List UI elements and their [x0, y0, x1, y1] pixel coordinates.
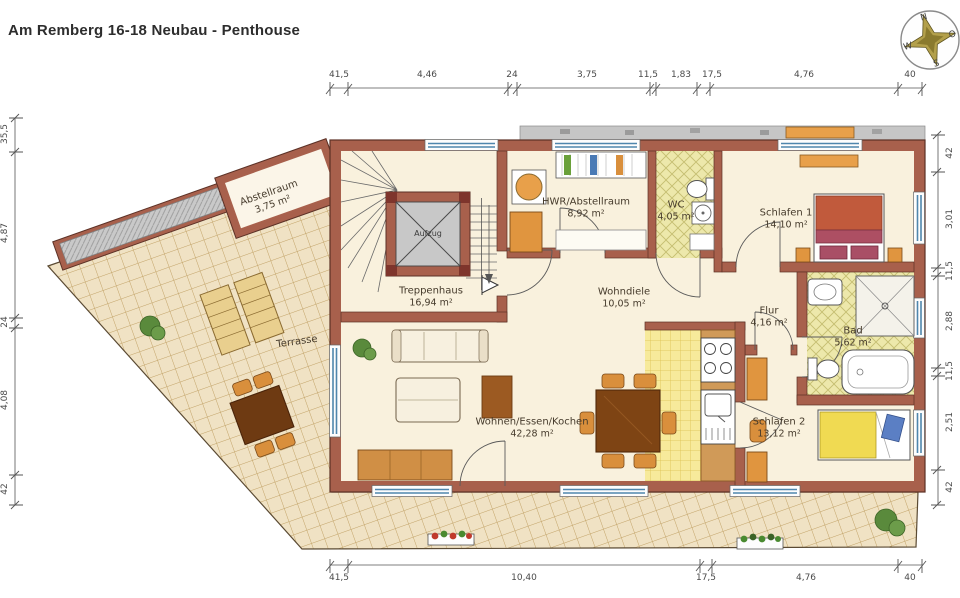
chair-icon — [634, 374, 656, 388]
cabinet-icon — [510, 212, 542, 252]
cabinet-icon — [690, 234, 714, 250]
room-label-schlafen1: Schlafen 1 14,10 m² — [760, 206, 813, 231]
wardrobe-icon — [747, 452, 767, 482]
kitchen-counter — [701, 330, 735, 481]
room-name: Schlafen 2 — [753, 415, 806, 428]
window-icon — [425, 140, 498, 151]
room-area: 13,12 m² — [753, 428, 806, 440]
bath-sink-icon — [808, 279, 842, 305]
room-name: Aufzug — [414, 229, 442, 239]
bed-icon — [814, 194, 884, 262]
dim-bottom-1: 10,40 — [511, 573, 537, 583]
table-round-icon — [512, 170, 546, 204]
compass-icon: N O S W — [896, 6, 960, 76]
dim-left-2: 24 — [0, 316, 10, 327]
dim-left-1: 4,87 — [0, 223, 10, 243]
dim-bottom-4: 40 — [904, 573, 915, 583]
chair-icon — [602, 454, 624, 468]
room-area: 14,10 m² — [760, 219, 813, 231]
roof-strip-top — [520, 126, 925, 140]
chair-icon — [602, 374, 624, 388]
room-label-aufzug: Aufzug — [414, 229, 442, 239]
dim-bottom-2: 17,5 — [696, 573, 716, 583]
sofa-icon — [396, 378, 460, 422]
room-area: 8,92 m² — [542, 208, 630, 220]
floorplan-page: N O S W Am Remberg 16-18 Neubau - Pentho… — [0, 0, 960, 598]
dresser-icon — [800, 155, 858, 167]
room-name: WC — [657, 198, 694, 211]
dimension-line-bottom — [326, 559, 926, 573]
dim-top-1: 4,46 — [417, 70, 437, 80]
dim-top-8: 40 — [904, 70, 915, 80]
terrace-sliding-door — [330, 345, 341, 437]
room-label-wc: WC 4,05 m² — [657, 198, 694, 223]
wardrobe-icon — [747, 358, 767, 400]
dim-top-5: 1,83 — [671, 70, 691, 80]
counter-icon — [556, 230, 646, 250]
chair-icon — [662, 412, 676, 434]
room-name: HWR/Abstellraum — [542, 195, 630, 208]
page-title: Am Remberg 16-18 Neubau - Penthouse — [8, 22, 300, 39]
room-name: Treppenhaus — [399, 284, 463, 297]
dim-right-3: 2,88 — [945, 311, 955, 331]
room-area: 10,05 m² — [598, 298, 650, 310]
room-area: 4,16 m² — [750, 317, 787, 329]
toilet-icon — [808, 358, 839, 380]
room-label-flur: Flur 4,16 m² — [750, 304, 787, 329]
nightstand-icon — [888, 248, 902, 262]
room-name: Flur — [750, 304, 787, 317]
room-label-wohndiele: Wohndiele 10,05 m² — [598, 285, 650, 310]
dim-left-0: 35,5 — [0, 124, 10, 144]
dimension-line-left — [9, 114, 23, 509]
washer-dryer-icon — [556, 152, 646, 178]
dim-top-2: 24 — [506, 70, 517, 80]
room-area: 16,94 m² — [399, 297, 463, 309]
sink-icon — [692, 202, 714, 224]
window-icon — [914, 298, 925, 338]
dim-right-2: 11,5 — [945, 261, 955, 281]
floorplan-drawing: N O S W — [0, 0, 960, 598]
dim-top-3: 3,75 — [577, 70, 597, 80]
bed-icon — [818, 410, 910, 460]
dim-right-6: 42 — [945, 481, 955, 492]
room-name: Bad — [834, 324, 871, 337]
dim-right-4: 11,5 — [945, 361, 955, 381]
dimension-line-top — [326, 82, 926, 96]
flower-box-icon — [786, 127, 854, 138]
room-label-wohnen: Wohnen/Essen/Kochen 42,28 m² — [475, 415, 588, 440]
sideboard-icon — [358, 450, 452, 480]
dim-bottom-3: 4,76 — [796, 573, 816, 583]
bathtub-icon — [842, 350, 914, 394]
window-icon — [730, 486, 800, 497]
room-name: Wohndiele — [598, 285, 650, 298]
window-icon — [372, 486, 452, 497]
dim-right-0: 42 — [945, 147, 955, 158]
room-label-schlafen2: Schlafen 2 13,12 m² — [753, 415, 806, 440]
room-name: Wohnen/Essen/Kochen — [475, 415, 588, 428]
dim-right-5: 2,51 — [945, 412, 955, 432]
window-icon — [552, 140, 640, 151]
room-area: 4,05 m² — [657, 211, 694, 223]
dim-left-4: 42 — [0, 483, 10, 494]
room-label-treppenhaus: Treppenhaus 16,94 m² — [399, 284, 463, 309]
room-name: Schlafen 1 — [760, 206, 813, 219]
window-icon — [778, 140, 862, 151]
dim-top-7: 4,76 — [794, 70, 814, 80]
window-icon — [560, 486, 648, 497]
sofa-icon — [392, 330, 488, 362]
dim-top-0: 41,5 — [329, 70, 349, 80]
room-area: 42,28 m² — [475, 428, 588, 440]
dim-right-1: 3,01 — [945, 209, 955, 229]
dim-left-3: 4,08 — [0, 390, 10, 410]
dim-top-4: 11,5 — [638, 70, 658, 80]
window-icon — [914, 410, 925, 456]
stove-icon — [701, 338, 735, 382]
room-label-bad: Bad 5,62 m² — [834, 324, 871, 349]
nightstand-icon — [796, 248, 810, 262]
window-icon — [914, 192, 925, 244]
kitchen-sink-icon — [701, 390, 735, 444]
side-table-icon — [482, 376, 512, 418]
room-area: 5,62 m² — [834, 337, 871, 349]
room-label-hwr: HWR/Abstellraum 8,92 m² — [542, 195, 630, 220]
dimension-line-right — [931, 131, 945, 509]
dim-top-6: 17,5 — [702, 70, 722, 80]
chair-icon — [634, 454, 656, 468]
dim-bottom-0: 41,5 — [329, 573, 349, 583]
